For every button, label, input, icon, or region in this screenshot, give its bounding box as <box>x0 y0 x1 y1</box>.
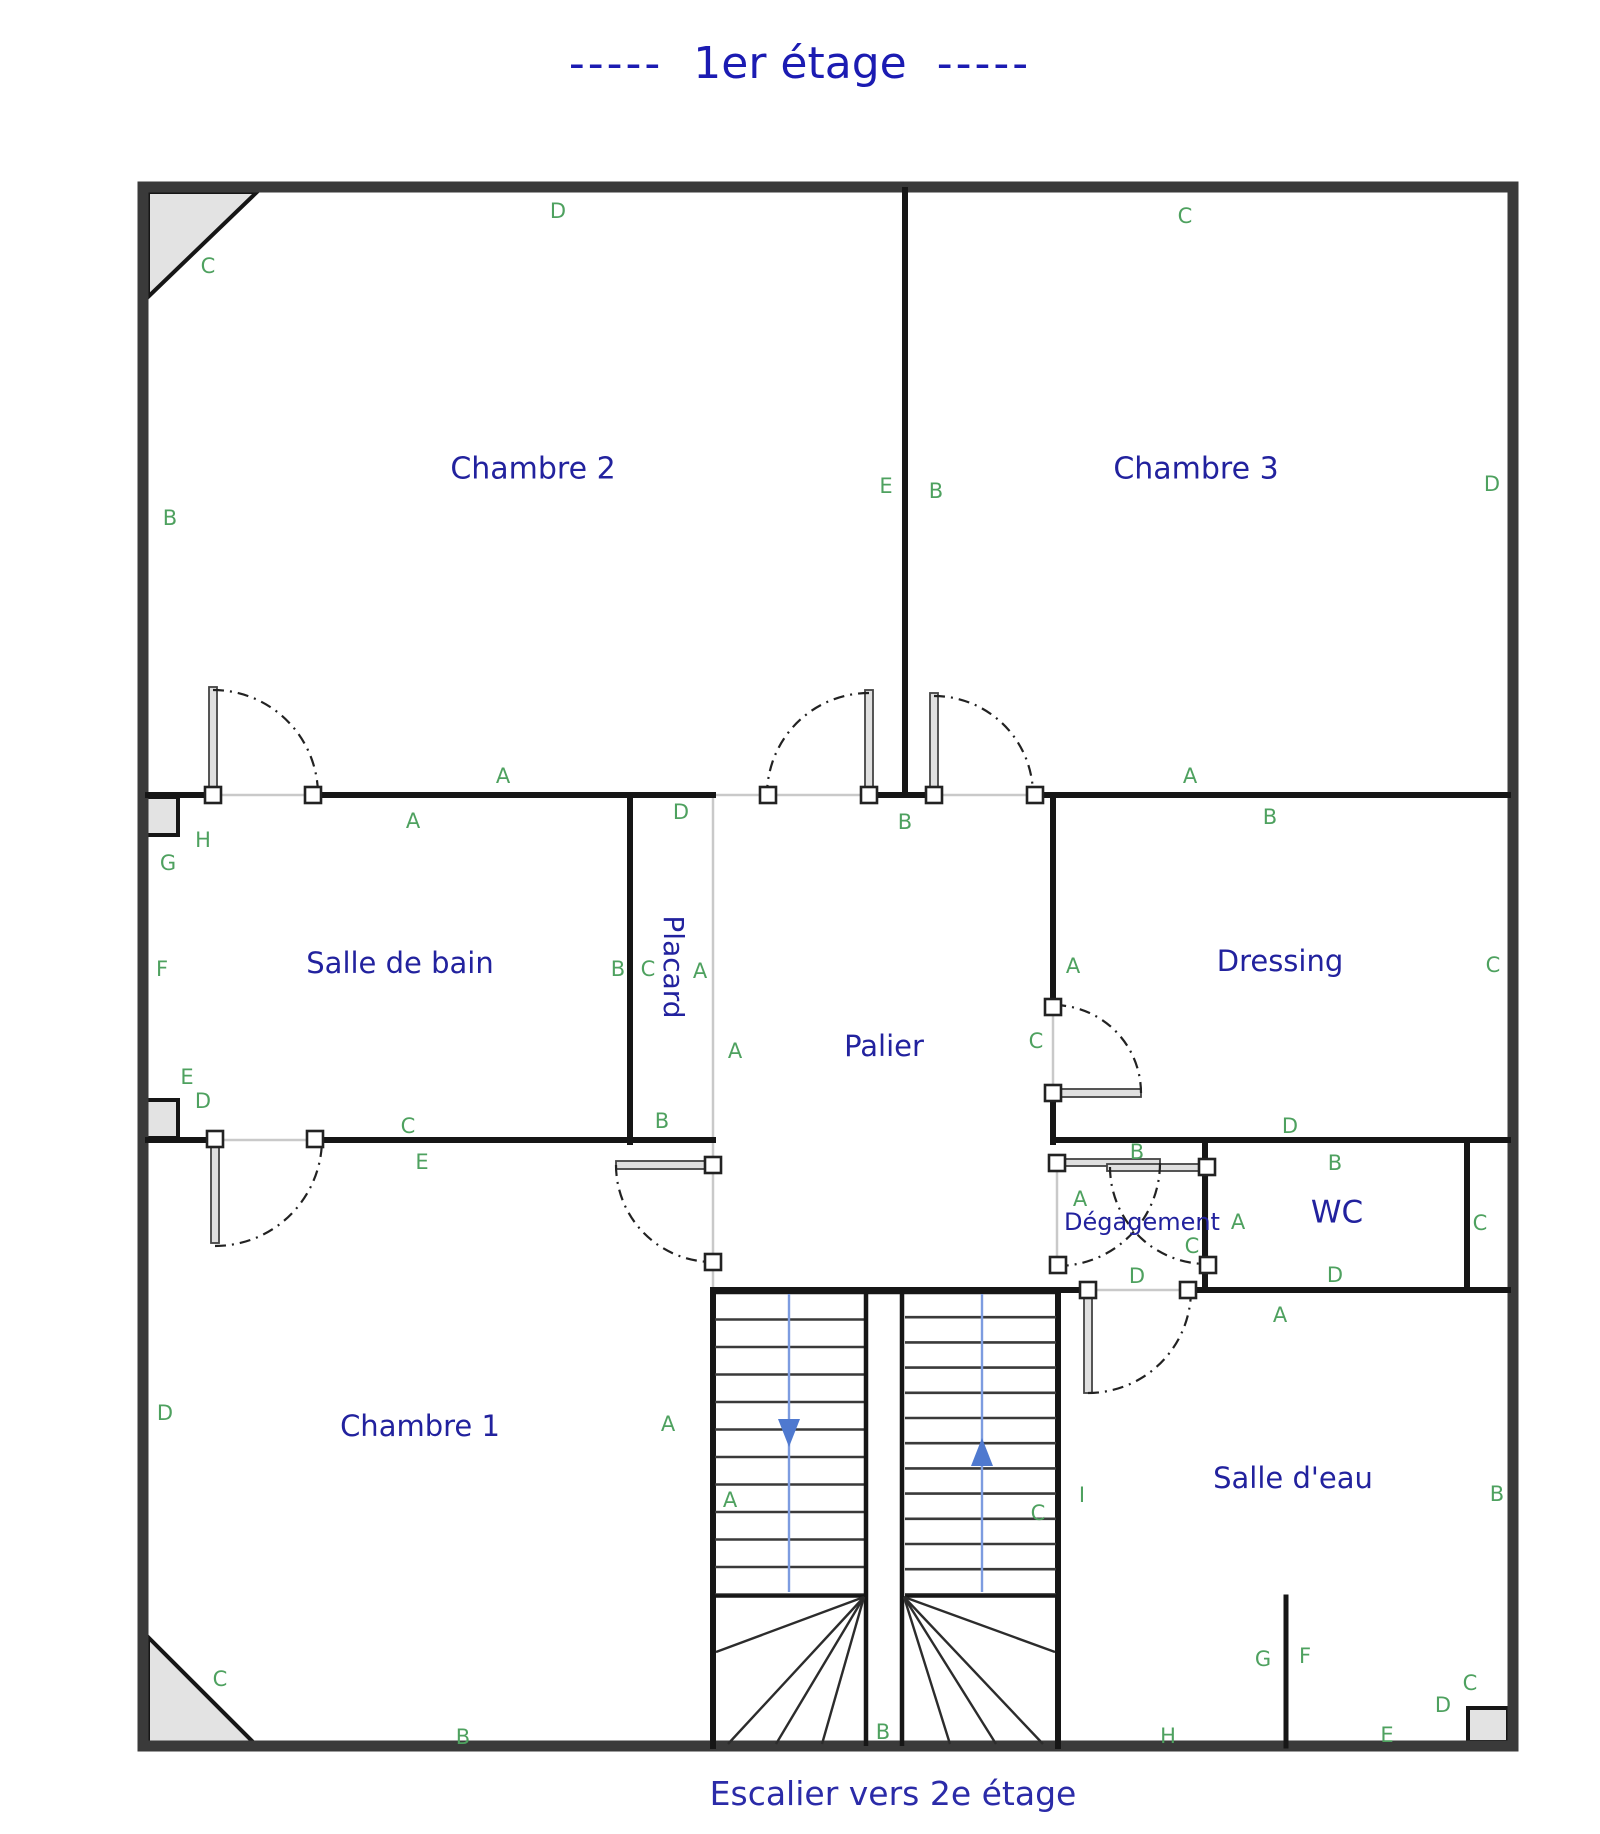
door-post <box>1027 787 1043 803</box>
chamfer-bottom-left <box>148 1637 257 1746</box>
room-label-dressing: Dressing <box>1217 944 1344 978</box>
door-arc-dressing <box>1053 1005 1141 1093</box>
wall-marker-a: A <box>1066 954 1081 978</box>
wall-marker-b: B <box>163 506 177 530</box>
wall-marker-b: B <box>1130 1140 1144 1164</box>
door-post <box>1080 1282 1096 1298</box>
door-arc-palier-chambre1 <box>616 1165 713 1262</box>
wall-marker-b: B <box>1328 1151 1342 1175</box>
wall-marker-g: G <box>1255 1647 1271 1671</box>
room-label-placard: Placard <box>657 915 690 1018</box>
wall-marker-a: A <box>1273 1303 1288 1327</box>
wall-marker-i: I <box>1079 1483 1085 1507</box>
wall-marker-h: H <box>195 828 211 852</box>
door-post <box>1180 1282 1196 1298</box>
staircase <box>715 1292 1056 1746</box>
notch-bottom-right <box>1468 1708 1508 1742</box>
wall-marker-d: D <box>195 1089 211 1113</box>
wall-marker-c: C <box>201 254 216 278</box>
room-label-degagement: Dégagement <box>1064 1208 1220 1236</box>
door-post <box>207 1131 223 1147</box>
door-post <box>760 787 776 803</box>
stairs-caption: Escalier vers 2e étage <box>710 1774 1077 1813</box>
wall-marker-c: C <box>1029 1029 1044 1053</box>
door-post <box>861 787 877 803</box>
door-leaf-palier-right <box>930 693 938 791</box>
notch-left-upper <box>146 797 178 835</box>
wall-marker-c: C <box>1185 1234 1200 1258</box>
door-leaf-degagement-2 <box>1107 1164 1204 1171</box>
wall-openings <box>213 795 1207 1290</box>
door-post <box>1045 1085 1061 1101</box>
room-label-salle-de-bain: Salle de bain <box>306 946 493 980</box>
wall-marker-d: D <box>1327 1263 1343 1287</box>
room-label-chambre-3: Chambre 3 <box>1113 452 1278 487</box>
wall-marker-e: E <box>879 474 892 498</box>
chamfer-top-left <box>148 192 257 297</box>
wall-marker-a: A <box>693 959 708 983</box>
room-label-chambre-1: Chambre 1 <box>340 1409 500 1443</box>
wall-marker-e: E <box>415 1150 428 1174</box>
wall-marker-b: B <box>876 1720 890 1744</box>
wall-marker-c: C <box>641 957 656 981</box>
wall-marker-a: A <box>496 764 511 788</box>
door-leaf-chambre-1 <box>211 1143 219 1243</box>
wall-marker-a: A <box>1231 1210 1246 1234</box>
door-arc-salle-deau <box>1088 1290 1191 1393</box>
wall-marker-a: A <box>661 1412 676 1436</box>
wall-marker-a: A <box>1073 1187 1088 1211</box>
door-leaf-salle-deau <box>1084 1294 1092 1393</box>
door-arc-chambre-1 <box>215 1139 322 1246</box>
wall-marker-d: D <box>1129 1264 1145 1288</box>
door-post <box>1045 999 1061 1015</box>
wall-marker-a: A <box>406 809 421 833</box>
wall-marker-a: A <box>723 1488 738 1512</box>
wall-marker-b: B <box>456 1725 470 1749</box>
door-post <box>705 1157 721 1173</box>
door-arc-palier-left <box>767 693 869 795</box>
wall-marker-c: C <box>1473 1211 1488 1235</box>
room-labels: Chambre 2Chambre 3Salle de bainPlacardPa… <box>306 452 1373 1496</box>
door-post <box>1200 1257 1216 1273</box>
arrow-down-icon <box>778 1419 800 1447</box>
wall-marker-a: A <box>1183 764 1198 788</box>
wall-marker-f: F <box>1299 1644 1311 1668</box>
wall-marker-c: C <box>1031 1501 1046 1525</box>
wall-marker-b: B <box>611 957 625 981</box>
wall-marker-g: G <box>160 851 176 875</box>
door-post <box>705 1254 721 1270</box>
door-leaf-salle-de-bain <box>209 687 217 791</box>
wall-marker-d: D <box>157 1401 173 1425</box>
wall-marker-b: B <box>655 1109 669 1133</box>
wall-marker-e: E <box>180 1065 193 1089</box>
wall-marker-f: F <box>156 957 168 981</box>
door-post <box>1049 1155 1065 1171</box>
room-label-chambre-2: Chambre 2 <box>450 452 615 487</box>
door-post <box>205 787 221 803</box>
wall-marker-d: D <box>1282 1114 1298 1138</box>
wall-marker-b: B <box>1263 805 1277 829</box>
wall-marker-b: B <box>898 810 912 834</box>
wall-marker-d: D <box>1484 472 1500 496</box>
wall-marker-c: C <box>1463 1671 1478 1695</box>
door-post <box>1199 1159 1215 1175</box>
door-arc-palier-right <box>934 696 1033 795</box>
room-label-wc: WC <box>1311 1195 1363 1231</box>
floor-plan-page: ----- 1er étage ----- <box>0 0 1600 1834</box>
door-leaf-palier-chambre1 <box>616 1161 710 1169</box>
room-label-salle-d-eau: Salle d'eau <box>1213 1461 1373 1495</box>
wall-marker-c: C <box>213 1667 228 1691</box>
door-post <box>1050 1257 1066 1273</box>
wall-marker-d: D <box>1435 1693 1451 1717</box>
notch-left-lower <box>146 1100 178 1138</box>
floor-plan-svg: Chambre 2Chambre 3Salle de bainPlacardPa… <box>0 0 1600 1834</box>
door-arc-salle-de-bain <box>213 690 318 795</box>
door-post <box>307 1131 323 1147</box>
room-label-palier: Palier <box>844 1029 924 1063</box>
door-post <box>926 787 942 803</box>
wall-marker-c: C <box>1178 204 1193 228</box>
wall-marker-d: D <box>673 800 689 824</box>
wall-marker-c: C <box>1486 953 1501 977</box>
wall-marker-c: C <box>401 1114 416 1138</box>
wall-marker-b: B <box>1490 1482 1504 1506</box>
door-post <box>305 787 321 803</box>
wall-marker-a: A <box>728 1039 743 1063</box>
door-leaf-dressing <box>1056 1089 1141 1097</box>
wall-marker-d: D <box>550 199 566 223</box>
wall-marker-e: E <box>1380 1723 1393 1747</box>
stair-treads <box>715 1292 1056 1595</box>
wall-marker-h: H <box>1160 1724 1176 1748</box>
door-leaf-palier-left <box>865 690 873 791</box>
wall-marker-b: B <box>929 479 943 503</box>
